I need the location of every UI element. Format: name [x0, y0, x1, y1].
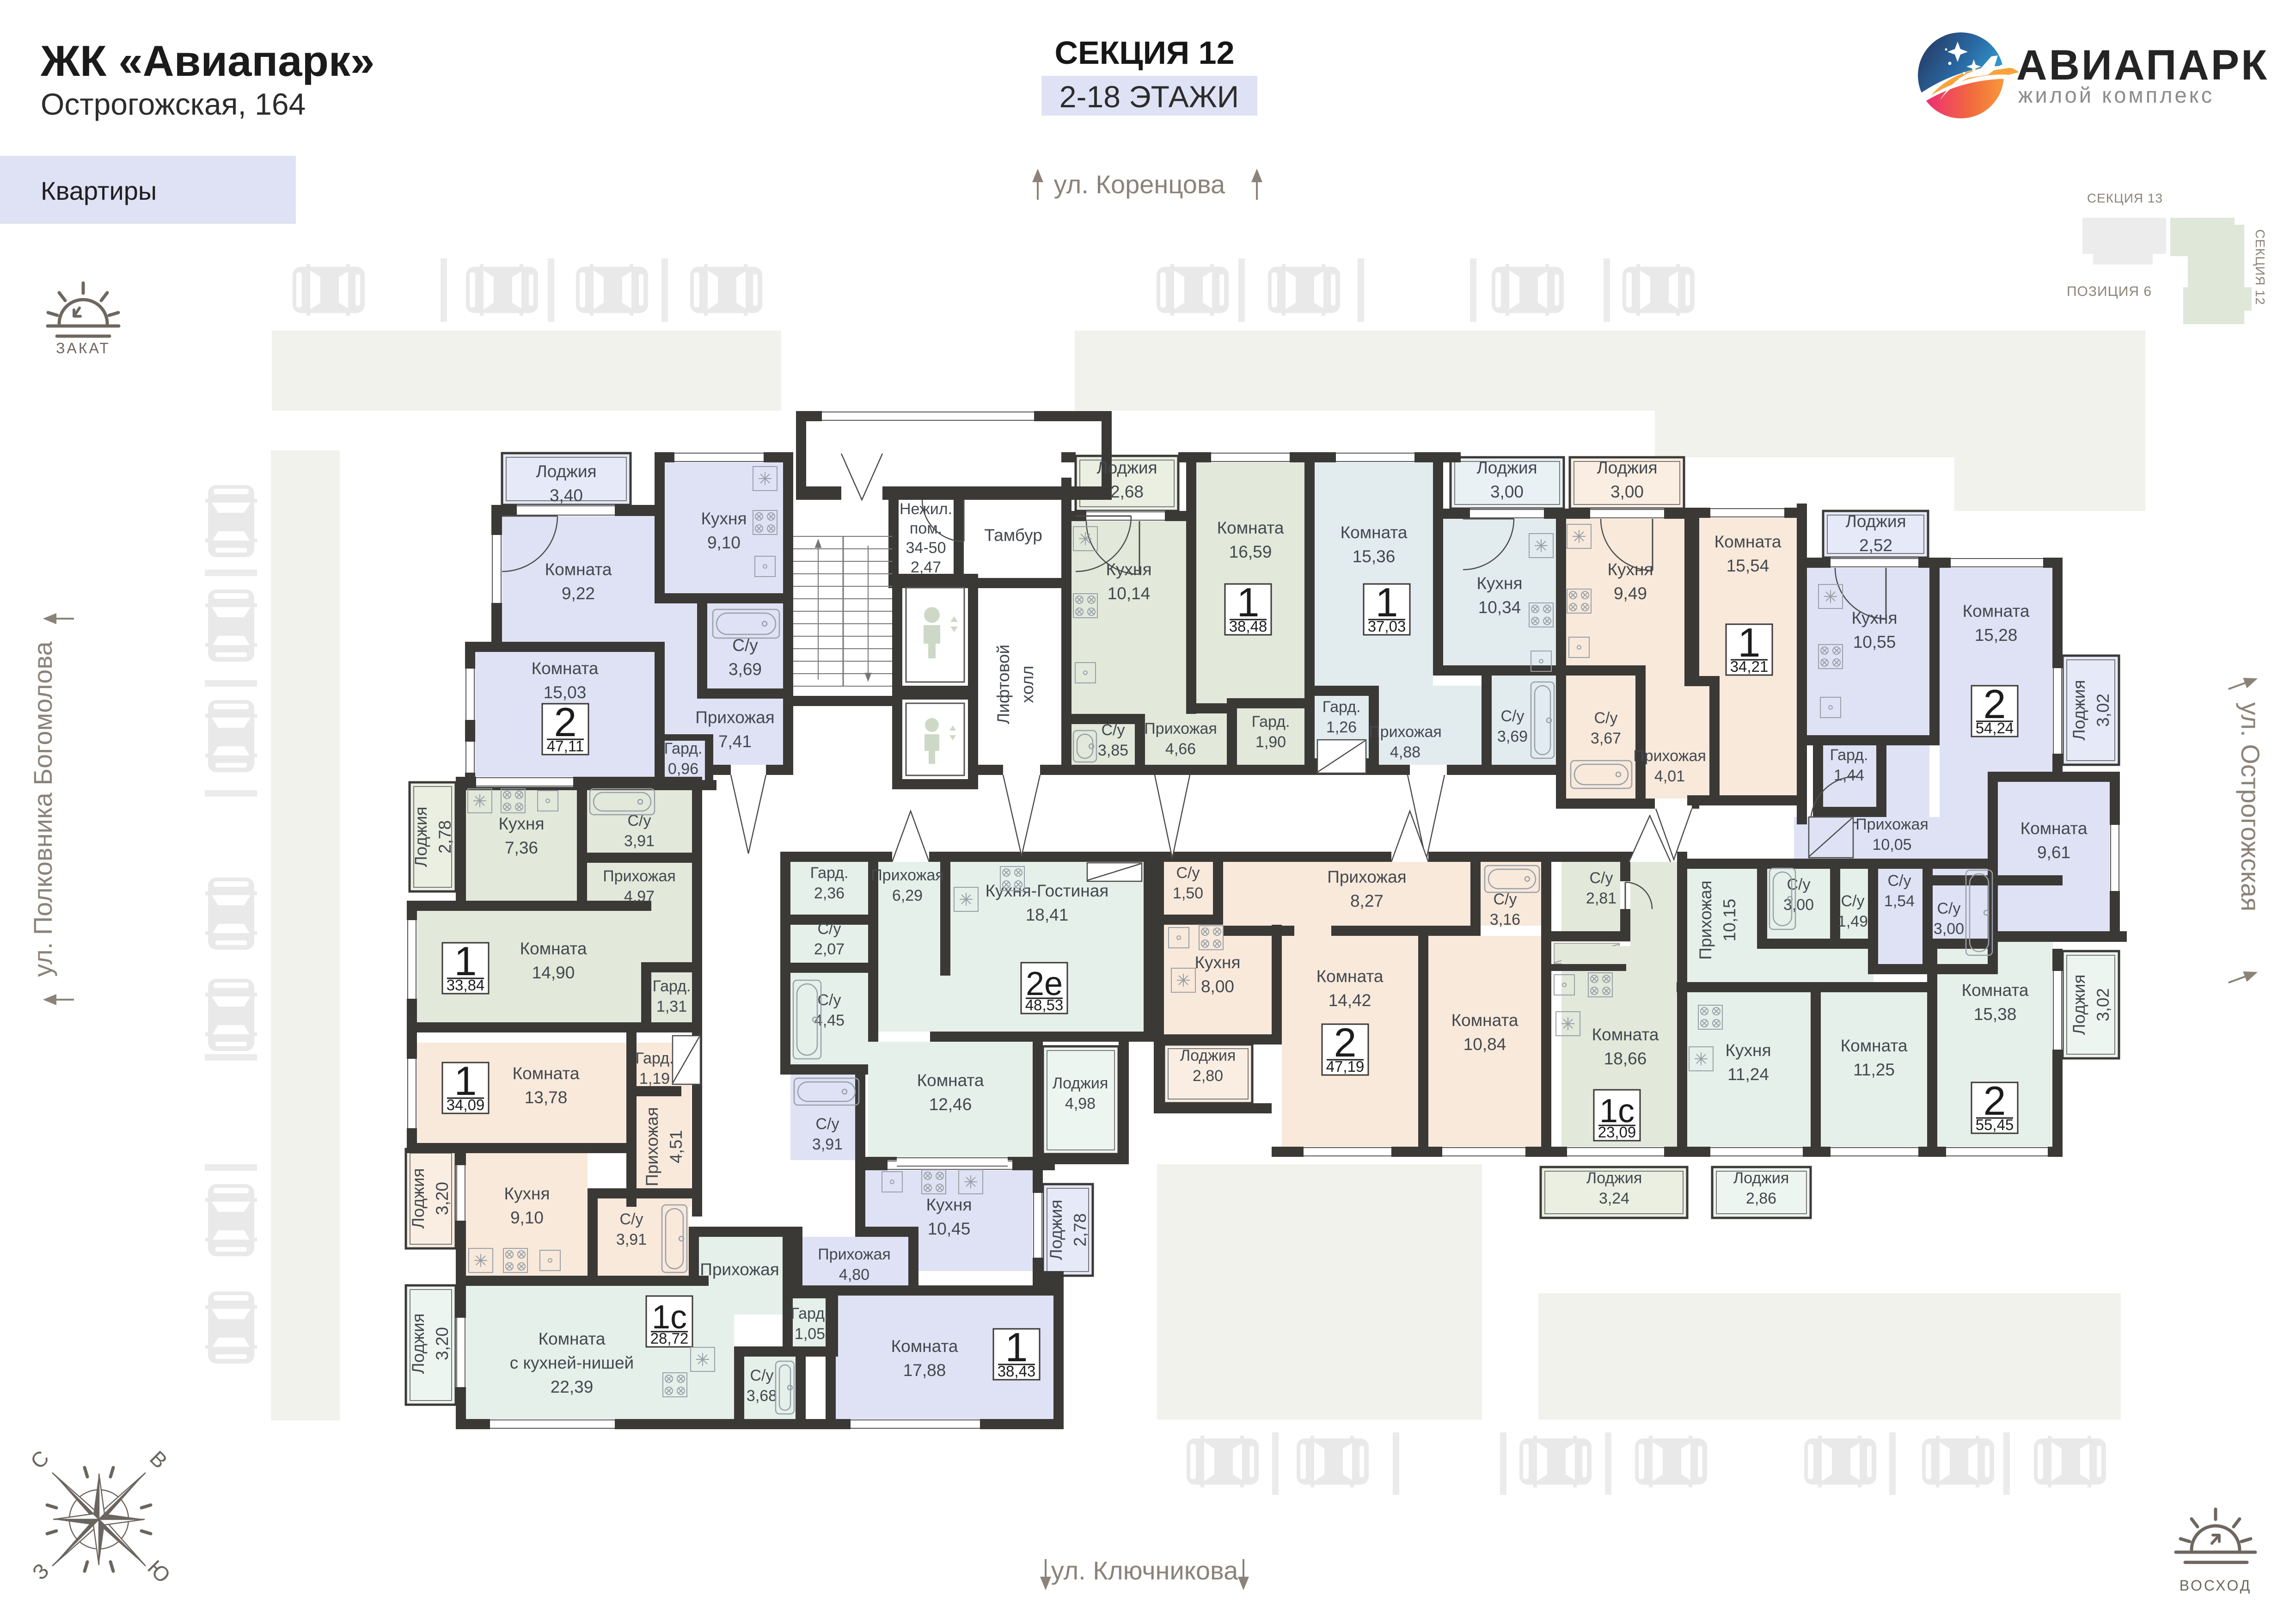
- svg-text:3,20: 3,20: [433, 1327, 452, 1360]
- svg-text:23,09: 23,09: [1598, 1124, 1636, 1141]
- svg-text:2,78: 2,78: [1071, 1213, 1090, 1247]
- svg-text:Комната: Комната: [891, 1337, 958, 1356]
- svg-text:1,54: 1,54: [1884, 892, 1915, 910]
- svg-text:38,43: 38,43: [998, 1363, 1036, 1380]
- svg-text:Комната: Комната: [1592, 1025, 1659, 1044]
- svg-text:11,24: 11,24: [1727, 1065, 1769, 1084]
- svg-text:Нежил.: Нежил.: [900, 500, 952, 518]
- svg-text:Лоджия: Лоджия: [1845, 512, 1906, 531]
- svg-text:3,69: 3,69: [1497, 728, 1528, 745]
- svg-text:Кухня: Кухня: [926, 1195, 972, 1214]
- svg-text:3,68: 3,68: [747, 1387, 777, 1405]
- svg-text:3,67: 3,67: [1591, 730, 1621, 747]
- svg-text:2,80: 2,80: [1193, 1067, 1223, 1085]
- svg-text:14,90: 14,90: [532, 963, 575, 982]
- svg-text:10,34: 10,34: [1478, 598, 1521, 617]
- svg-text:2,07: 2,07: [814, 940, 845, 958]
- svg-text:Комната: Комната: [1316, 967, 1384, 986]
- svg-text:АВИАПАРК: АВИАПАРК: [2016, 42, 2269, 89]
- svg-text:Комната: Комната: [1963, 602, 2030, 621]
- svg-text:Кухня: Кухня: [1607, 560, 1653, 579]
- svg-text:Комната: Комната: [545, 560, 612, 579]
- svg-text:Прихожая: Прихожая: [700, 1260, 779, 1279]
- svg-text:54,24: 54,24: [1976, 719, 2014, 737]
- svg-text:1,05: 1,05: [795, 1325, 825, 1343]
- svg-text:Лоджия: Лоджия: [409, 1168, 428, 1229]
- svg-text:Лоджия: Лоджия: [1047, 1199, 1065, 1260]
- svg-text:8,00: 8,00: [1201, 977, 1234, 996]
- svg-text:37,03: 37,03: [1368, 618, 1406, 635]
- svg-text:Прихожая: Прихожая: [1327, 867, 1406, 886]
- svg-text:Прихожая: Прихожая: [1369, 723, 1442, 741]
- svg-text:Комната: Комната: [532, 659, 599, 678]
- svg-text:1,90: 1,90: [1255, 733, 1286, 751]
- svg-text:Гард.: Гард.: [1252, 713, 1290, 731]
- svg-text:Прихожая: Прихожая: [818, 1246, 891, 1263]
- svg-text:Лифтовой: Лифтовой: [994, 645, 1013, 724]
- svg-text:3,85: 3,85: [1098, 742, 1128, 759]
- svg-text:Кухня: Кухня: [504, 1184, 550, 1203]
- svg-text:Острогожская, 164: Острогожская, 164: [41, 87, 306, 121]
- svg-text:Кухня: Кухня: [1106, 560, 1151, 579]
- svg-text:ЗАКАТ: ЗАКАТ: [56, 340, 110, 356]
- svg-text:2,52: 2,52: [1859, 536, 1892, 555]
- svg-text:Прихожая: Прихожая: [695, 708, 774, 727]
- svg-text:ул. Коренцова: ул. Коренцова: [1054, 170, 1225, 199]
- svg-text:Комната: Комната: [520, 939, 587, 958]
- svg-text:3,40: 3,40: [550, 486, 583, 505]
- svg-text:15,54: 15,54: [1727, 556, 1769, 575]
- svg-text:10,05: 10,05: [1872, 836, 1911, 854]
- svg-text:Лоджия: Лоджия: [2069, 680, 2088, 740]
- svg-text:Лоджия: Лоджия: [1096, 458, 1157, 477]
- svg-text:СЕКЦИЯ 12: СЕКЦИЯ 12: [2253, 229, 2267, 305]
- svg-text:48,53: 48,53: [1025, 996, 1064, 1014]
- svg-text:Комната: Комната: [513, 1064, 580, 1083]
- svg-text:2-18 ЭТАЖИ: 2-18 ЭТАЖИ: [1059, 80, 1239, 114]
- svg-text:С/у: С/у: [1176, 864, 1200, 882]
- svg-text:12,46: 12,46: [929, 1095, 972, 1114]
- svg-text:9,49: 9,49: [1614, 584, 1647, 603]
- svg-text:7,36: 7,36: [505, 838, 538, 857]
- svg-text:Комната: Комната: [1217, 518, 1284, 537]
- svg-text:18,41: 18,41: [1026, 905, 1069, 924]
- svg-text:9,61: 9,61: [2037, 843, 2070, 862]
- svg-text:7,41: 7,41: [718, 732, 752, 751]
- svg-text:Лоджия: Лоджия: [2069, 974, 2088, 1035]
- svg-text:пом.: пом.: [910, 520, 942, 537]
- svg-text:С/у: С/у: [1494, 891, 1517, 908]
- svg-text:10,84: 10,84: [1463, 1035, 1506, 1054]
- svg-text:Кухня: Кухня: [498, 814, 544, 833]
- svg-text:ПОЗИЦИЯ 6: ПОЗИЦИЯ 6: [2067, 284, 2152, 299]
- svg-text:Лоджия: Лоджия: [1586, 1169, 1642, 1187]
- svg-text:Гард.: Гард.: [810, 864, 849, 882]
- svg-text:3,00: 3,00: [1934, 920, 1964, 938]
- svg-text:38,48: 38,48: [1229, 618, 1267, 635]
- svg-text:Кухня: Кухня: [1194, 953, 1240, 972]
- svg-text:1,50: 1,50: [1173, 885, 1203, 902]
- svg-text:1,26: 1,26: [1326, 719, 1357, 736]
- svg-text:9,10: 9,10: [707, 533, 741, 552]
- svg-text:С/у: С/у: [1590, 869, 1613, 887]
- svg-text:Лоджия: Лоджия: [536, 462, 596, 481]
- svg-text:Прихожая: Прихожая: [603, 867, 676, 885]
- svg-text:Кухня: Кухня: [701, 509, 747, 528]
- svg-text:2,36: 2,36: [814, 885, 845, 902]
- svg-text:8,27: 8,27: [1350, 891, 1384, 910]
- svg-text:Кухня: Кухня: [1476, 574, 1522, 593]
- svg-text:16,59: 16,59: [1229, 542, 1272, 561]
- svg-text:ул. Ключникова: ул. Ключникова: [1051, 1556, 1238, 1585]
- svg-text:47,11: 47,11: [547, 737, 584, 755]
- svg-text:Комната: Комната: [917, 1071, 984, 1090]
- svg-text:С/у: С/у: [818, 920, 841, 938]
- svg-text:1,31: 1,31: [656, 998, 687, 1015]
- svg-text:Комната: Комната: [1962, 981, 2029, 1000]
- svg-text:4,98: 4,98: [1065, 1095, 1096, 1112]
- svg-text:Комната: Комната: [539, 1329, 606, 1348]
- svg-text:9,10: 9,10: [510, 1208, 544, 1227]
- svg-text:С/у: С/у: [816, 1115, 839, 1133]
- svg-text:Прихожая: Прихожая: [871, 866, 944, 884]
- svg-text:Прихожая: Прихожая: [1855, 816, 1929, 833]
- svg-text:Гард.: Гард.: [653, 977, 691, 995]
- svg-text:10,45: 10,45: [928, 1219, 971, 1238]
- svg-text:34,21: 34,21: [1730, 658, 1769, 675]
- svg-text:Прихожая: Прихожая: [1696, 880, 1715, 959]
- svg-text:ВОСХОД: ВОСХОД: [2180, 1577, 2252, 1594]
- svg-text:с кухней-нишей: с кухней-нишей: [510, 1353, 634, 1372]
- svg-text:С/у: С/у: [1937, 900, 1961, 917]
- svg-text:Тамбур: Тамбур: [984, 526, 1042, 545]
- svg-text:0,96: 0,96: [668, 760, 698, 778]
- svg-text:3,20: 3,20: [433, 1182, 452, 1215]
- svg-text:2,78: 2,78: [435, 820, 454, 854]
- svg-text:Лоджия: Лоджия: [1053, 1075, 1108, 1092]
- svg-text:3,16: 3,16: [1490, 911, 1520, 928]
- svg-text:55,45: 55,45: [1976, 1116, 2014, 1133]
- svg-text:11,25: 11,25: [1853, 1060, 1895, 1079]
- svg-text:13,78: 13,78: [525, 1088, 568, 1107]
- svg-text:холл: холл: [1018, 665, 1037, 703]
- svg-text:4,45: 4,45: [814, 1012, 845, 1029]
- svg-text:Гард.: Гард.: [1830, 746, 1868, 764]
- svg-text:4,66: 4,66: [1165, 740, 1196, 758]
- svg-text:Гард.: Гард.: [664, 740, 703, 757]
- svg-text:2,47: 2,47: [911, 559, 941, 576]
- svg-text:47,19: 47,19: [1326, 1058, 1365, 1075]
- svg-text:Лоджия: Лоджия: [411, 806, 430, 867]
- svg-text:Комната: Комната: [1841, 1036, 1908, 1055]
- svg-text:ЖК «Авиапарк»: ЖК «Авиапарк»: [40, 37, 374, 85]
- svg-text:СЕКЦИЯ 13: СЕКЦИЯ 13: [2087, 191, 2163, 205]
- svg-text:4,80: 4,80: [839, 1266, 869, 1284]
- svg-text:Лоджия: Лоджия: [1476, 458, 1537, 477]
- svg-text:10,15: 10,15: [1720, 899, 1739, 942]
- svg-text:1,49: 1,49: [1837, 913, 1868, 930]
- svg-text:Прихожая: Прихожая: [1633, 747, 1706, 765]
- svg-text:3,91: 3,91: [812, 1136, 843, 1153]
- svg-text:жилой комплекс: жилой комплекс: [2018, 83, 2214, 107]
- svg-text:С/у: С/у: [1888, 872, 1911, 890]
- svg-text:34-50: 34-50: [906, 539, 946, 557]
- svg-text:Кухня: Кухня: [1725, 1041, 1771, 1060]
- svg-text:Комната: Комната: [1341, 523, 1408, 542]
- svg-text:Лоджия: Лоджия: [1597, 458, 1657, 477]
- svg-text:Комната: Комната: [2020, 819, 2088, 838]
- svg-text:Квартиры: Квартиры: [41, 176, 157, 205]
- svg-text:1,44: 1,44: [1834, 767, 1864, 784]
- svg-text:С/у: С/у: [750, 1367, 774, 1384]
- svg-text:2,81: 2,81: [1586, 890, 1616, 907]
- svg-text:33,84: 33,84: [447, 977, 485, 994]
- svg-text:Гард.: Гард.: [791, 1305, 829, 1322]
- svg-text:10,55: 10,55: [1853, 633, 1896, 651]
- svg-text:Кухня: Кухня: [1851, 608, 1897, 627]
- svg-text:3,02: 3,02: [2094, 988, 2112, 1021]
- svg-text:28,72: 28,72: [650, 1330, 689, 1347]
- svg-text:С/у: С/у: [1501, 707, 1525, 725]
- svg-text:2,68: 2,68: [1110, 482, 1144, 501]
- svg-text:6,29: 6,29: [892, 887, 923, 904]
- svg-text:9,22: 9,22: [562, 584, 595, 603]
- svg-text:15,36: 15,36: [1353, 547, 1396, 566]
- svg-text:С/у: С/у: [1594, 709, 1618, 727]
- svg-text:15,28: 15,28: [1975, 626, 2018, 645]
- svg-text:Гард.: Гард.: [636, 1050, 674, 1067]
- svg-text:4,97: 4,97: [624, 888, 655, 905]
- svg-text:15,38: 15,38: [1974, 1005, 2017, 1024]
- svg-text:С/у: С/у: [1102, 721, 1125, 739]
- svg-text:2,86: 2,86: [1746, 1190, 1776, 1207]
- svg-text:3,91: 3,91: [616, 1231, 647, 1248]
- svg-text:4,51: 4,51: [667, 1130, 686, 1163]
- svg-text:Прихожая: Прихожая: [643, 1107, 661, 1186]
- svg-text:Лоджия: Лоджия: [1733, 1169, 1789, 1187]
- svg-text:14,42: 14,42: [1329, 991, 1371, 1010]
- svg-text:34,09: 34,09: [447, 1096, 485, 1113]
- svg-text:ул. Полковника Богомолова: ул. Полковника Богомолова: [28, 641, 57, 977]
- svg-text:4,01: 4,01: [1654, 768, 1685, 785]
- svg-text:22,39: 22,39: [551, 1377, 594, 1396]
- svg-text:3,91: 3,91: [624, 832, 655, 850]
- svg-text:3,02: 3,02: [2094, 694, 2112, 727]
- svg-text:Прихожая: Прихожая: [1144, 720, 1217, 737]
- svg-text:3,00: 3,00: [1490, 482, 1524, 501]
- svg-text:10,14: 10,14: [1108, 584, 1151, 603]
- svg-text:Комната: Комната: [1451, 1011, 1518, 1030]
- svg-text:С/у: С/у: [620, 1210, 643, 1228]
- svg-text:Лоджия: Лоджия: [409, 1313, 428, 1374]
- svg-text:1,19: 1,19: [639, 1070, 670, 1087]
- svg-text:17,88: 17,88: [903, 1361, 946, 1380]
- svg-text:3,24: 3,24: [1599, 1190, 1629, 1207]
- svg-text:Комната: Комната: [1714, 532, 1782, 551]
- svg-text:ул. Острогожская: ул. Острогожская: [2236, 702, 2265, 911]
- svg-text:Лоджия: Лоджия: [1180, 1047, 1236, 1064]
- svg-text:С/у: С/у: [1787, 876, 1811, 893]
- svg-text:С/у: С/у: [1841, 892, 1865, 910]
- svg-text:3,69: 3,69: [729, 660, 762, 679]
- svg-text:3,00: 3,00: [1610, 482, 1644, 501]
- svg-text:СЕКЦИЯ 12: СЕКЦИЯ 12: [1054, 35, 1234, 71]
- svg-text:Гард.: Гард.: [1322, 698, 1361, 716]
- svg-text:18,66: 18,66: [1604, 1049, 1647, 1068]
- svg-text:4,88: 4,88: [1390, 743, 1420, 761]
